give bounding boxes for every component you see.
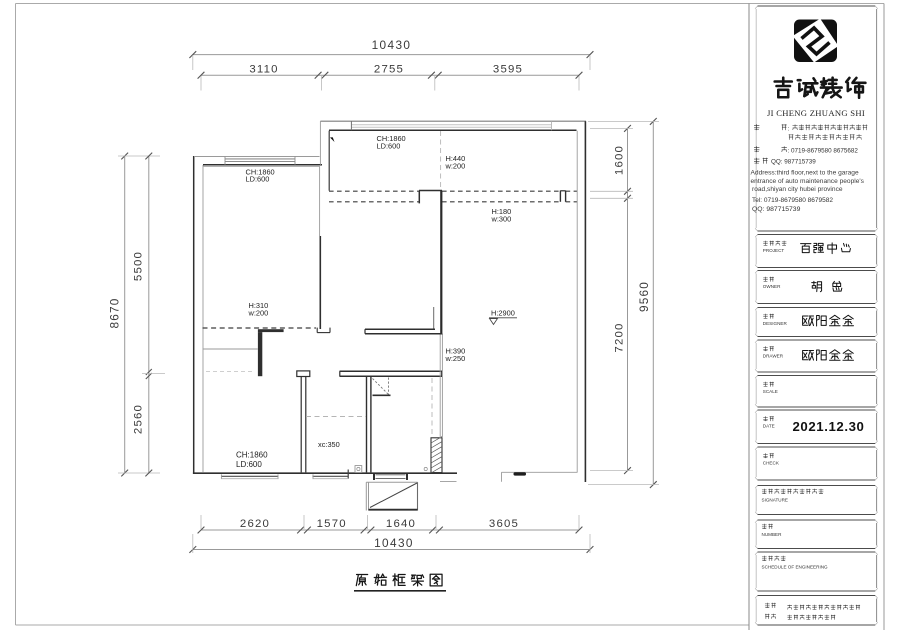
svg-text:JI CHENG ZHUANG SHI: JI CHENG ZHUANG SHI <box>767 108 865 118</box>
svg-text:LD:600: LD:600 <box>236 460 262 469</box>
svg-text:1640: 1640 <box>386 518 416 530</box>
svg-text:CH:1860: CH:1860 <box>236 451 268 460</box>
svg-text:SIGNATURE: SIGNATURE <box>762 498 788 503</box>
svg-text:LD:600: LD:600 <box>246 175 270 184</box>
svg-text:PROJECT: PROJECT <box>763 248 785 253</box>
svg-text:w:250: w:250 <box>445 354 466 363</box>
svg-text:DRAWER: DRAWER <box>763 354 784 359</box>
svg-text:w:300: w:300 <box>491 215 512 224</box>
svg-text:2560: 2560 <box>133 404 145 434</box>
svg-text:1600: 1600 <box>614 145 626 175</box>
svg-text:w:200: w:200 <box>445 162 466 171</box>
svg-text:9560: 9560 <box>637 281 651 312</box>
svg-text:entrance of auto maintenance p: entrance of auto maintenance people's <box>751 178 865 185</box>
svg-text::: : <box>788 125 790 132</box>
svg-text:LD:600: LD:600 <box>377 142 401 151</box>
svg-text:DATE: DATE <box>763 424 775 429</box>
svg-text:2755: 2755 <box>374 64 404 76</box>
svg-text:road,shiyan city hubei provinc: road,shiyan city hubei province <box>752 186 843 193</box>
svg-text:1570: 1570 <box>317 518 347 530</box>
svg-text:Address:third floor,next to th: Address:third floor,next to the garage <box>751 170 859 177</box>
svg-text:xc:350: xc:350 <box>318 440 340 449</box>
svg-text:Tel: 0719-8679580 8679582: Tel: 0719-8679580 8679582 <box>752 197 833 204</box>
svg-text:QQ: 987715739: QQ: 987715739 <box>752 206 801 213</box>
svg-text:2021.12.30: 2021.12.30 <box>792 419 864 434</box>
svg-text:8670: 8670 <box>108 297 122 328</box>
svg-text:3110: 3110 <box>249 64 278 76</box>
svg-text:SCALE: SCALE <box>763 389 778 394</box>
svg-text:10430: 10430 <box>372 38 412 52</box>
svg-text:CHECK: CHECK <box>763 461 780 466</box>
svg-text:7200: 7200 <box>614 322 626 352</box>
svg-text:DESIGNER: DESIGNER <box>763 321 788 326</box>
svg-text:OWNER: OWNER <box>763 284 781 289</box>
svg-text:w:200: w:200 <box>248 309 269 318</box>
svg-text:H:2900: H:2900 <box>491 309 515 318</box>
svg-text:2620: 2620 <box>240 518 270 530</box>
svg-text:10430: 10430 <box>374 536 414 550</box>
svg-text:QQ: 987715739: QQ: 987715739 <box>771 158 816 165</box>
svg-text:SCHEDULE OF ENGINEERING: SCHEDULE OF ENGINEERING <box>762 565 829 570</box>
svg-text:NUMBER: NUMBER <box>762 532 783 537</box>
svg-text:3595: 3595 <box>493 64 523 76</box>
svg-text:: 0719-8679580 8675682: : 0719-8679580 8675682 <box>788 147 859 154</box>
svg-text:3605: 3605 <box>489 518 519 530</box>
svg-text:5500: 5500 <box>133 251 145 281</box>
